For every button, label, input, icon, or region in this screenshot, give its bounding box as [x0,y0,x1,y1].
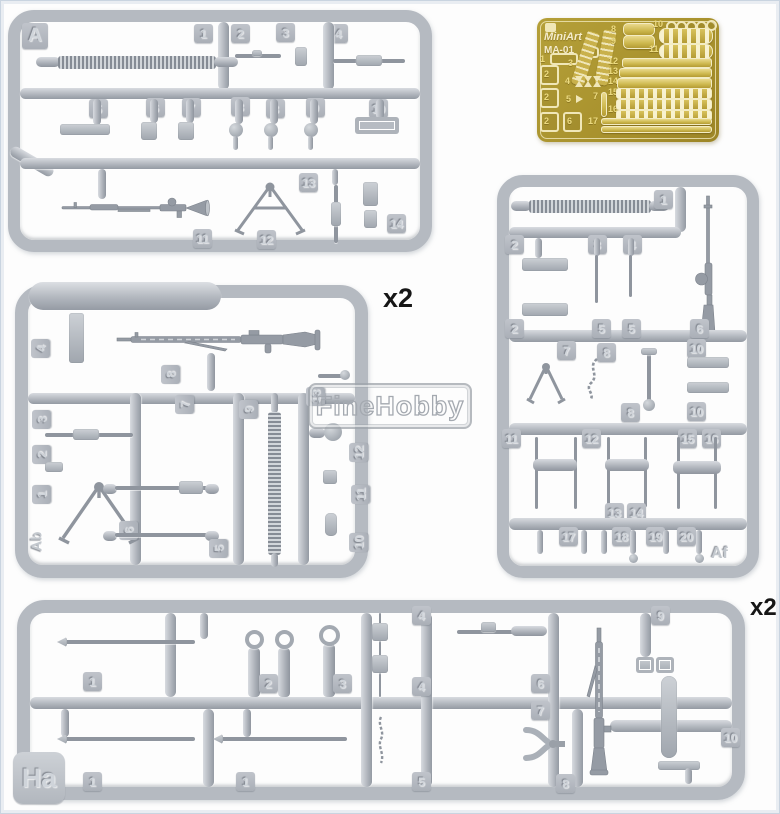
sprue-gate [332,169,338,185]
mg42-machine-gun-part [115,325,330,355]
y-fork-part [522,722,566,766]
turnbuckle-part [331,202,341,226]
sprue-gate [310,99,318,124]
pe-number: 2 [544,69,549,79]
part-number-tag: 1 [654,190,673,209]
sprue-gate [581,530,587,554]
rod-part [115,533,207,537]
part-number-tag: 5 [592,319,611,338]
part-number-tag: 7 [175,395,194,414]
turnbuckle-part [356,55,382,66]
molded-part [364,210,377,228]
pe-part [601,92,607,117]
sight-ring-part [319,625,340,646]
pe-number: 2 [544,92,549,102]
frame-part [355,117,399,134]
sprue-gate [150,99,158,123]
part-number-tag: 8 [161,365,180,384]
watermark-text: FineHobby [316,391,465,422]
molded-part [340,370,350,380]
mg34-machine-gun-part [60,196,230,220]
pe-ammo-belt-part [659,44,713,59]
sprue-gate [663,530,669,554]
pe-number: 5 [566,94,571,104]
pe-number: 6 [567,116,572,126]
sprue-runner [605,459,649,471]
sprue-gate [61,709,69,737]
strap-plate-part [522,258,568,271]
sprue-gate [628,238,634,256]
pe-number: 9 [611,36,616,46]
part-number-tag: 11 [502,429,521,448]
sprue-runner [533,459,577,471]
coil-spring-part [529,200,651,213]
pe-number: 8 [611,24,616,34]
clamp-part [372,655,388,673]
pe-number: 17 [588,116,598,126]
part-number-tag: 2 [505,235,524,254]
part-number-tag: 7 [531,701,550,720]
part-number-tag: 1 [236,772,255,791]
sprue-gate [594,238,600,256]
pe-number: 3 [568,58,573,68]
coil-spring-part [268,412,281,555]
clamp-part [141,122,157,140]
part-number-tag: 10 [721,728,740,747]
sprue-a: A 1 2 3 4 5 6 7 8 8 9 10 [8,10,432,252]
tool-part [647,348,651,404]
sprue-gate [601,530,607,554]
chain-part [375,715,387,765]
part-number-tag: 13 [299,173,318,192]
sprue-gate [93,99,101,125]
part-number-tag: 5 [412,772,431,791]
part-number-tag: 3 [32,410,51,429]
blade-part [69,313,84,363]
molded-part [295,47,307,66]
part-number-tag: 15 [678,429,697,448]
turnbuckle-part [73,429,99,440]
part-number-tag: 3 [276,23,295,42]
quantity-label: x2 [383,283,413,314]
clamp-part [178,122,194,140]
sprue-gate [376,99,384,119]
part-number-tag: 2 [231,24,250,43]
scope-part [481,622,496,632]
tool-part [641,348,657,355]
pe-number: 1 [540,54,545,64]
sprue-gate [233,136,238,150]
part-number-tag: 11 [193,229,212,248]
strip-part [687,357,729,368]
pe-buckle-part [550,53,578,65]
quantity-label: x2 [750,594,777,622]
part-number-tag: 12 [582,429,601,448]
sprue-runner [20,88,420,99]
cleaning-rod-part [61,737,195,741]
sprue-gate [214,57,238,67]
part-number-tag: 20 [677,527,696,546]
sprue-af: 1 2 3 4 2 5 5 6 7 8 10 [497,175,759,578]
part-number-tag: 14 [387,214,406,233]
molded-part [60,124,110,135]
part-number-tag: 18 [612,527,631,546]
sprue-gate [98,169,106,199]
part-number-tag: 9 [239,400,258,419]
part-number-tag: 4 [31,339,50,358]
sprue-gate [278,648,290,697]
molded-part [229,123,243,137]
sprue-letter-tag: Ab [29,532,46,552]
brand-logo: MiniArt [544,31,582,43]
sprue-runner [675,187,686,232]
sprue-gate [235,99,243,124]
pe-number: 12 [608,56,618,66]
photo-etched-fret: MiniArt MA-01 1 2 2 2 6 3 4 5 7 8 9 10 1… [537,18,719,142]
sprue-gate [630,530,636,554]
sight-ring-part [245,630,264,649]
sprue-gate [308,136,313,150]
part-number-tag: 5 [622,319,641,338]
sprue-gate [268,136,273,150]
pe-number: 10 [653,19,663,29]
part-number-tag: 1 [83,672,102,691]
part-number-tag: 1 [32,485,51,504]
molded-part [318,374,342,378]
part-number-tag: 6 [119,521,138,540]
pe-number: 7 [593,91,598,101]
barrel-part [574,437,577,509]
pe-buckle-part [540,88,559,108]
sprue-gate [685,768,692,784]
molded-part [323,470,337,484]
part-number-tag: 1 [83,772,102,791]
pe-buckle-part [563,112,582,132]
part-number-tag: 2 [259,674,278,693]
pe-number: 2 [544,116,549,126]
pe-buckle-part [540,112,559,132]
part-number-tag: 10 [687,339,706,358]
sprue-runner [421,613,432,787]
product-photo: A 1 2 3 4 5 6 7 8 8 9 10 [0,0,780,814]
sprue-runner [218,22,229,90]
sprue-gate [271,393,278,413]
sprue-letter-tag: Ha [13,752,65,804]
sprue-gate [36,57,60,67]
cleaning-rod-part [217,737,347,741]
part-number-tag: 7 [557,341,576,360]
sprue-gate [511,201,531,211]
pe-strip-part [616,88,712,99]
sprue-runner [30,697,732,709]
sprue-gate [271,553,278,567]
part-number-tag: 3 [333,674,352,693]
part-number-tag: 8 [556,774,575,793]
bracket-part [636,657,654,673]
sprue-runner [165,613,176,697]
chain-part [583,357,603,401]
molded-part [304,123,318,137]
molded-part [45,462,63,472]
sprue-runner [323,22,334,90]
sprue-gate [207,353,215,391]
pe-number: 13 [608,66,618,76]
pin-part [629,255,632,297]
sprue-runner [203,709,214,787]
sprue-runner [673,461,721,474]
part-number-tag: 6 [531,674,550,693]
sprue-gate [696,530,702,554]
pe-number: 4 [565,76,570,86]
sprue-gate [186,99,194,123]
tool-part [643,399,655,411]
sprue-gate [309,428,325,438]
bracket-part [656,657,674,673]
sprue-letter-tag: Af [711,545,728,563]
strip-part [687,382,729,393]
part-number-tag: 2 [505,319,524,338]
molded-part [264,123,278,137]
sprue-gate [200,613,208,639]
pin-part [595,255,598,303]
pe-buckle-part [540,65,559,85]
molded-part [363,182,378,206]
sprue-runner [640,613,651,657]
strap-plate-part [522,303,568,316]
cylinder-part [325,513,337,536]
cleaning-rod-part [61,640,195,644]
sprue-runner [29,282,221,310]
sprue-gate [537,530,543,554]
pe-strip-part [601,126,712,133]
pe-number: 11 [649,44,659,54]
plate-part [658,761,700,770]
clamp-part [372,623,388,641]
bipod-part [525,361,567,406]
sprue-gate [270,99,278,124]
pe-ammo-belt-part [659,28,713,44]
part-number-tag: 5 [209,539,228,558]
part-number-tag: 8 [621,403,640,422]
part-number-tag: 12 [257,230,276,249]
watermark-badge: FineHobby [308,383,472,429]
sprue-gate [243,709,251,737]
sprue-gate [511,626,547,636]
part-number-tag: 9 [651,606,670,625]
molded-part [252,50,262,56]
part-number-tag: 12 [349,443,368,462]
mg42-machine-gun-part-vertical [585,626,613,778]
sight-ring-part [275,630,294,649]
part-number-tag: 17 [559,527,578,546]
sprue-runner [20,158,420,169]
part-number-tag: 16 [702,429,721,448]
sprue-runner [361,613,372,787]
coil-spring-part [58,56,216,69]
pe-strip-part [622,58,712,68]
part-number-tag: 11 [351,485,370,504]
sprue-gate [205,484,219,494]
part-number-tag: 1 [194,24,213,43]
pe-strip-part [619,68,712,78]
barrel-part [607,437,610,507]
part-number-tag: 10 [349,533,368,552]
part-number-tag: 4 [412,606,431,625]
part-number-tag: 6 [690,319,709,338]
cylinder-part [661,676,677,758]
part-number-tag: 10 [687,402,706,421]
sprue-ha: 1 2 3 4 4 6 9 1 1 5 7 [17,600,745,800]
barrel-part [644,437,647,507]
pe-strip-part [601,118,712,125]
pe-strip-part [616,99,712,110]
sprue-ab: 4 8 7 3 2 1 [15,285,368,578]
part-number-tag: 4 [412,677,431,696]
sprue-gate [535,238,542,258]
barrel-part [535,437,538,509]
molded-part [695,554,704,563]
latch-part [179,481,203,494]
sprue-letter-tag: A [22,23,48,49]
molded-part [629,554,638,563]
